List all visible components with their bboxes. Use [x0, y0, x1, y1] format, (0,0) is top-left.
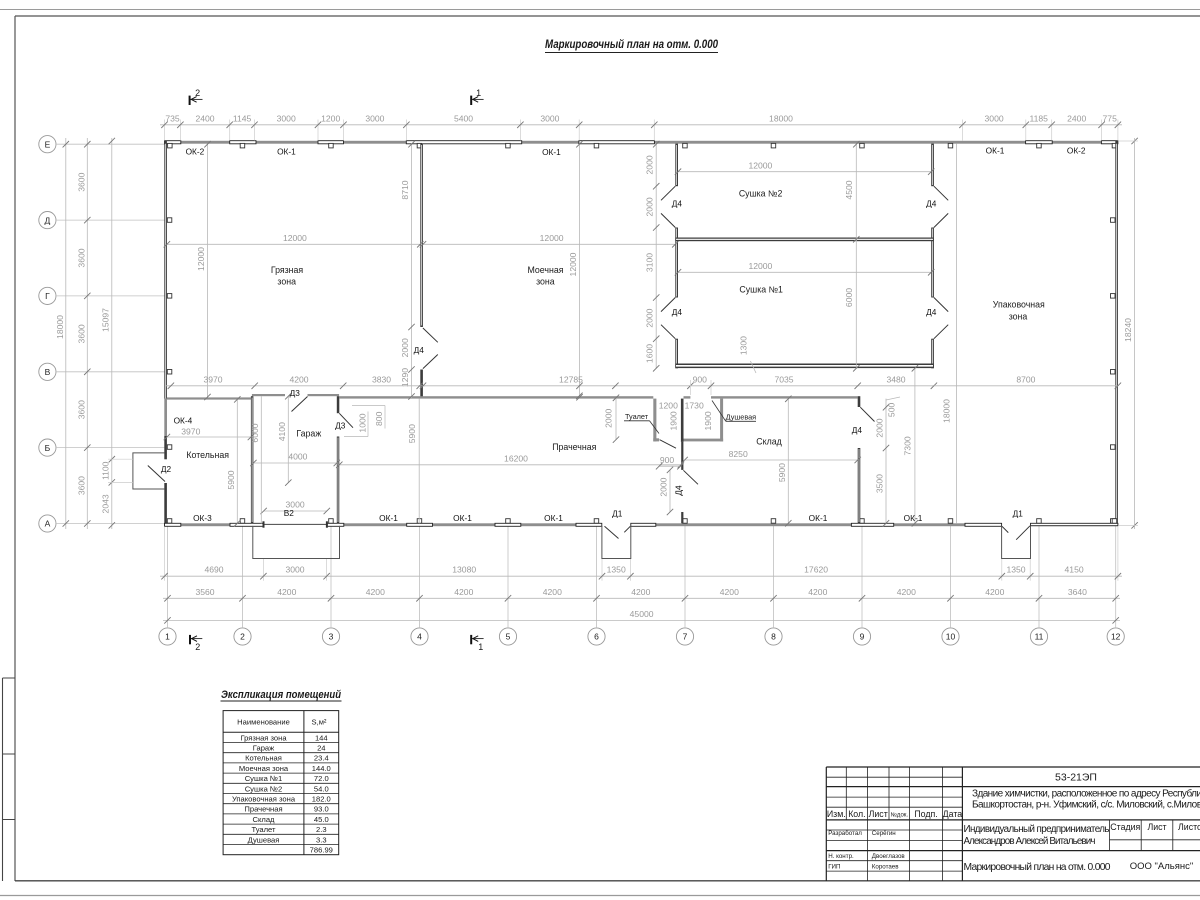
svg-text:1600: 1600 — [645, 344, 655, 363]
svg-text:2000: 2000 — [874, 418, 884, 437]
svg-text:12785: 12785 — [559, 374, 583, 384]
svg-text:Гараж: Гараж — [296, 429, 321, 439]
svg-text:45.0: 45.0 — [314, 815, 329, 824]
svg-text:8710: 8710 — [400, 180, 410, 199]
svg-text:ОК-2: ОК-2 — [186, 146, 205, 156]
svg-text:Гараж: Гараж — [253, 744, 275, 753]
svg-text:4200: 4200 — [720, 587, 739, 597]
svg-text:5900: 5900 — [407, 424, 417, 443]
svg-text:Стадия: Стадия — [1110, 822, 1140, 832]
svg-text:4200: 4200 — [985, 587, 1004, 597]
svg-text:ОК-1: ОК-1 — [544, 513, 563, 523]
svg-text:Г: Г — [45, 291, 50, 301]
svg-text:1: 1 — [478, 642, 483, 652]
svg-text:зона: зона — [536, 277, 555, 287]
svg-text:Туалет: Туалет — [251, 825, 276, 834]
svg-text:Лист: Лист — [869, 809, 888, 819]
svg-text:18000: 18000 — [769, 113, 793, 123]
svg-text:1900: 1900 — [703, 411, 713, 430]
svg-text:1: 1 — [165, 632, 170, 642]
svg-text:144.0: 144.0 — [312, 764, 331, 773]
svg-text:Грязная: Грязная — [271, 265, 304, 275]
svg-text:3970: 3970 — [181, 426, 200, 436]
svg-text:Грязная зона: Грязная зона — [240, 733, 287, 742]
svg-text:Сушка №1: Сушка №1 — [245, 774, 283, 783]
svg-text:1350: 1350 — [1006, 565, 1025, 575]
svg-text:93.0: 93.0 — [314, 805, 329, 814]
svg-text:Лист: Лист — [1147, 822, 1166, 832]
svg-text:53-21ЭП: 53-21ЭП — [1055, 772, 1097, 784]
svg-text:Маркировочный план на отм. 0.0: Маркировочный план на отм. 0.000 — [964, 862, 1111, 873]
svg-text:Д4: Д4 — [672, 199, 683, 209]
svg-text:16200: 16200 — [504, 453, 528, 463]
svg-text:S,м²: S,м² — [312, 717, 327, 726]
svg-text:12000: 12000 — [748, 261, 772, 271]
svg-text:2000: 2000 — [400, 338, 410, 357]
svg-text:Упаковочная зона: Упаковочная зона — [232, 795, 296, 804]
svg-text:54.0: 54.0 — [314, 784, 329, 793]
svg-text:3600: 3600 — [76, 172, 86, 191]
svg-text:786.99: 786.99 — [310, 846, 333, 855]
svg-text:5900: 5900 — [226, 470, 236, 489]
svg-text:ООО "Альянс": ООО "Альянс" — [1130, 861, 1194, 872]
svg-text:А: А — [45, 519, 51, 529]
svg-text:Д3: Д3 — [290, 388, 301, 398]
svg-text:4: 4 — [417, 632, 422, 642]
svg-text:3.3: 3.3 — [316, 835, 327, 844]
svg-text:3600: 3600 — [76, 400, 86, 419]
svg-text:900: 900 — [660, 455, 675, 465]
svg-text:4200: 4200 — [808, 587, 827, 597]
svg-text:Сушка №2: Сушка №2 — [739, 188, 783, 198]
svg-text:Кол.: Кол. — [848, 809, 865, 819]
svg-text:18000: 18000 — [942, 399, 952, 423]
svg-text:8700: 8700 — [1016, 374, 1035, 384]
svg-text:72.0: 72.0 — [314, 774, 329, 783]
svg-text:1100: 1100 — [100, 461, 110, 480]
svg-text:1900: 1900 — [669, 411, 679, 430]
svg-text:5400: 5400 — [454, 113, 473, 123]
svg-text:12: 12 — [1111, 632, 1121, 642]
svg-text:Индивидуальный предприниматель: Индивидуальный предприниматель — [964, 824, 1110, 835]
svg-text:3600: 3600 — [76, 248, 86, 267]
svg-text:Коротаев: Коротаев — [872, 864, 899, 871]
svg-text:ОК-1: ОК-1 — [986, 145, 1005, 155]
svg-text:800: 800 — [374, 411, 384, 426]
svg-text:3600: 3600 — [76, 476, 86, 495]
svg-text:ОК-1: ОК-1 — [809, 513, 828, 523]
svg-text:Душевая: Душевая — [248, 835, 280, 844]
svg-text:12000: 12000 — [283, 233, 307, 243]
svg-text:144: 144 — [315, 733, 328, 742]
svg-text:9: 9 — [860, 632, 865, 642]
svg-text:Двоеглазов: Двоеглазов — [872, 853, 906, 860]
svg-text:2.3: 2.3 — [316, 825, 327, 834]
svg-text:Д4: Д4 — [852, 425, 863, 435]
svg-text:6: 6 — [594, 632, 599, 642]
svg-text:Д2: Д2 — [161, 464, 172, 474]
svg-text:4500: 4500 — [844, 180, 854, 199]
svg-text:3560: 3560 — [195, 587, 214, 597]
svg-text:Наименование: Наименование — [237, 717, 290, 726]
svg-text:3000: 3000 — [277, 113, 296, 123]
svg-text:Александров Алексей Витальевич: Александров Алексей Витальевич — [964, 836, 1096, 847]
svg-text:17620: 17620 — [804, 565, 828, 575]
svg-text:Моечная зона: Моечная зона — [239, 764, 289, 773]
svg-text:Экспликация помещений: Экспликация помещений — [221, 689, 341, 701]
svg-text:5900: 5900 — [777, 463, 787, 482]
svg-text:ОК-1: ОК-1 — [904, 513, 923, 523]
svg-text:10: 10 — [946, 632, 956, 642]
svg-text:12000: 12000 — [196, 247, 206, 271]
svg-text:4150: 4150 — [1065, 565, 1084, 575]
svg-text:18240: 18240 — [1123, 318, 1133, 342]
svg-text:2000: 2000 — [604, 409, 614, 428]
svg-text:Сушка №1: Сушка №1 — [739, 285, 783, 295]
svg-text:4200: 4200 — [454, 587, 473, 597]
svg-text:4200: 4200 — [366, 587, 385, 597]
svg-text:Д4: Д4 — [414, 345, 425, 355]
svg-text:5: 5 — [506, 632, 511, 642]
svg-text:8250: 8250 — [729, 449, 748, 459]
svg-text:45000: 45000 — [630, 609, 654, 619]
svg-text:Б: Б — [45, 443, 51, 453]
svg-text:2: 2 — [195, 88, 200, 98]
svg-text:11: 11 — [1035, 632, 1044, 642]
svg-text:6000: 6000 — [250, 423, 260, 442]
svg-text:Серёгин: Серёгин — [872, 830, 896, 837]
svg-text:182.0: 182.0 — [312, 795, 331, 804]
svg-text:3640: 3640 — [1068, 587, 1087, 597]
svg-text:2000: 2000 — [645, 155, 655, 174]
svg-text:3100: 3100 — [645, 253, 655, 272]
svg-text:7: 7 — [683, 632, 688, 642]
svg-text:ОК-1: ОК-1 — [277, 146, 296, 156]
svg-text:Н. контр.: Н. контр. — [828, 853, 854, 860]
svg-text:1200: 1200 — [321, 113, 340, 123]
svg-text:3480: 3480 — [886, 374, 905, 384]
svg-text:18000: 18000 — [55, 315, 65, 339]
svg-text:4200: 4200 — [897, 587, 916, 597]
svg-text:1730: 1730 — [685, 400, 704, 410]
svg-text:2000: 2000 — [645, 308, 655, 327]
svg-text:Д4: Д4 — [926, 199, 937, 209]
svg-text:ОК-1: ОК-1 — [453, 513, 472, 523]
svg-text:3830: 3830 — [372, 374, 391, 384]
svg-text:500: 500 — [887, 403, 897, 418]
svg-text:1350: 1350 — [607, 565, 626, 575]
svg-text:Д1: Д1 — [1013, 508, 1024, 518]
svg-text:ОК-1: ОК-1 — [542, 147, 561, 157]
svg-text:Здание химчистки, расположенн: Здание химчистки, расположенное по адрес… — [972, 788, 1200, 800]
svg-text:Разработал: Разработал — [828, 830, 862, 837]
svg-text:Д3: Д3 — [335, 421, 346, 431]
svg-text:3970: 3970 — [203, 374, 222, 384]
svg-text:Прачечная: Прачечная — [552, 442, 596, 452]
svg-text:4000: 4000 — [288, 452, 307, 462]
svg-text:Дата: Дата — [943, 809, 963, 819]
svg-text:зона: зона — [1009, 312, 1028, 322]
svg-text:3: 3 — [329, 632, 334, 642]
svg-text:3600: 3600 — [76, 324, 86, 343]
svg-text:3500: 3500 — [874, 474, 884, 493]
svg-text:Д4: Д4 — [674, 485, 684, 496]
svg-text:ОК-1: ОК-1 — [379, 513, 398, 523]
svg-text:2000: 2000 — [659, 477, 669, 496]
svg-text:зона: зона — [277, 277, 296, 287]
svg-text:8: 8 — [771, 632, 776, 642]
svg-text:Котельная: Котельная — [186, 450, 229, 460]
svg-text:7300: 7300 — [903, 436, 913, 455]
svg-text:Д: Д — [45, 215, 51, 225]
svg-text:1145: 1145 — [233, 113, 252, 123]
svg-text:4100: 4100 — [277, 422, 287, 441]
svg-text:6000: 6000 — [844, 288, 854, 307]
svg-text:ОК-4: ОК-4 — [174, 415, 193, 425]
svg-text:4200: 4200 — [289, 374, 308, 384]
svg-text:Туалет: Туалет — [625, 412, 649, 421]
svg-text:Подп.: Подп. — [914, 809, 937, 819]
svg-text:Листо: Листо — [1178, 822, 1200, 832]
svg-text:4200: 4200 — [277, 587, 296, 597]
svg-text:4690: 4690 — [204, 565, 223, 575]
svg-text:1200: 1200 — [659, 400, 678, 410]
svg-text:2: 2 — [240, 632, 245, 642]
svg-text:Сушка №2: Сушка №2 — [245, 784, 283, 793]
svg-text:Маркировочный план на отм. 0.0: Маркировочный план на отм. 0.000 — [545, 37, 718, 51]
svg-text:2000: 2000 — [645, 197, 655, 216]
svg-text:Упаковочная: Упаковочная — [993, 300, 1045, 310]
svg-text:900: 900 — [693, 374, 708, 384]
svg-text:ОК-2: ОК-2 — [1067, 145, 1086, 155]
svg-text:2400: 2400 — [195, 113, 214, 123]
svg-text:№док.: №док. — [891, 812, 909, 819]
svg-text:В2: В2 — [284, 508, 295, 518]
svg-text:13080: 13080 — [452, 565, 476, 575]
svg-text:3000: 3000 — [365, 113, 384, 123]
svg-text:Д4: Д4 — [672, 307, 683, 317]
svg-text:12000: 12000 — [748, 160, 772, 170]
svg-text:4200: 4200 — [543, 587, 562, 597]
svg-text:Башкортостан, р-н. Уфимский, с: Башкортостан, р-н. Уфимский, с/с. Миловс… — [972, 799, 1200, 811]
svg-text:Склад: Склад — [253, 815, 276, 824]
svg-text:Прачечная: Прачечная — [244, 805, 282, 814]
svg-text:ГИП: ГИП — [828, 864, 840, 871]
svg-text:2400: 2400 — [1067, 113, 1086, 123]
svg-text:Е: Е — [45, 139, 51, 149]
svg-text:2043: 2043 — [100, 494, 110, 513]
svg-text:12000: 12000 — [568, 252, 578, 276]
svg-text:15097: 15097 — [100, 308, 110, 332]
svg-text:Д4: Д4 — [926, 307, 937, 317]
svg-text:3000: 3000 — [285, 565, 304, 575]
svg-text:В: В — [45, 367, 51, 377]
svg-text:Душевая: Душевая — [726, 413, 757, 422]
svg-text:Склад: Склад — [756, 437, 781, 447]
svg-text:24: 24 — [317, 744, 325, 753]
svg-text:12000: 12000 — [540, 233, 564, 243]
svg-text:Д1: Д1 — [612, 508, 623, 518]
svg-text:1290: 1290 — [400, 368, 410, 387]
svg-text:7035: 7035 — [774, 374, 793, 384]
svg-text:ОК-3: ОК-3 — [193, 513, 212, 523]
svg-text:735: 735 — [165, 113, 180, 123]
svg-text:Котельная: Котельная — [245, 754, 282, 763]
svg-text:23.4: 23.4 — [314, 754, 329, 763]
svg-text:1300: 1300 — [739, 336, 749, 355]
svg-text:3000: 3000 — [540, 113, 559, 123]
svg-text:1185: 1185 — [1029, 113, 1048, 123]
svg-text:Изм.: Изм. — [827, 809, 846, 819]
svg-text:2: 2 — [195, 642, 200, 652]
svg-text:3000: 3000 — [985, 113, 1004, 123]
svg-text:1: 1 — [476, 88, 481, 98]
svg-text:775: 775 — [1103, 113, 1118, 123]
svg-text:1000: 1000 — [358, 413, 368, 432]
svg-text:4200: 4200 — [631, 587, 650, 597]
svg-text:Моечная: Моечная — [527, 265, 563, 275]
